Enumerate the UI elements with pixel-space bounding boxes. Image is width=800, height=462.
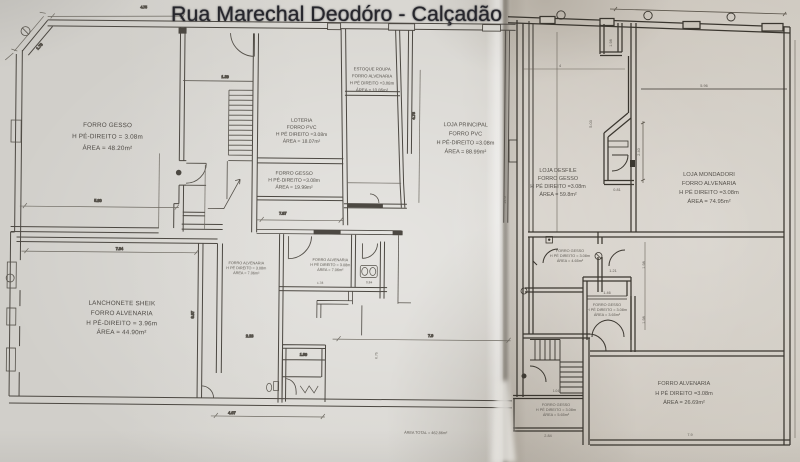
svg-text:ÁREA = 48.20m²: ÁREA = 48.20m² <box>82 143 132 152</box>
svg-text:FORRO GESSO: FORRO GESSO <box>556 249 584 253</box>
svg-text:FORRO GESSO: FORRO GESSO <box>542 403 570 407</box>
svg-text:FORRO GESSO: FORRO GESSO <box>83 122 132 129</box>
svg-text:1.98: 1.98 <box>609 39 613 46</box>
svg-text:ÁREA = 88.99m²: ÁREA = 88.99m² <box>444 148 486 155</box>
svg-text:FORRO PVC: FORRO PVC <box>287 125 317 131</box>
svg-text:1.04: 1.04 <box>553 389 559 393</box>
svg-text:H PÉ DIREITO = 3.08m: H PÉ DIREITO = 3.08m <box>550 253 590 258</box>
svg-text:H PÉ-DIREITO =3.08m: H PÉ-DIREITO =3.08m <box>268 176 320 183</box>
svg-text:ÁREA = 18.07m²: ÁREA = 18.07m² <box>283 138 321 145</box>
svg-text:ÁREA = 3.65m²: ÁREA = 3.65m² <box>594 313 621 317</box>
svg-text:1.46: 1.46 <box>603 291 610 295</box>
svg-text:7.9: 7.9 <box>428 334 433 338</box>
svg-text:6.97: 6.97 <box>191 311 195 318</box>
svg-text:1.78: 1.78 <box>36 43 44 51</box>
svg-text:FORRO ALVENARIA: FORRO ALVENARIA <box>313 258 349 262</box>
svg-text:2.40: 2.40 <box>637 148 641 155</box>
svg-text:LANCHONETE SHEIK: LANCHONETE SHEIK <box>88 300 156 308</box>
svg-text:FORRO PVC: FORRO PVC <box>449 131 482 137</box>
svg-text:H PÉ-DIREITO = 3.08m: H PÉ-DIREITO = 3.08m <box>72 131 143 141</box>
svg-text:ÁREA = 74.95m²: ÁREA = 74.95m² <box>687 198 730 205</box>
svg-text:4: 4 <box>559 64 561 68</box>
svg-text:ÁREA = 26.69m²: ÁREA = 26.69m² <box>663 399 705 406</box>
svg-text:LOTERIA: LOTERIA <box>291 118 313 124</box>
svg-text:H PÉ-DIREITO =3.08m: H PÉ-DIREITO =3.08m <box>437 139 495 147</box>
svg-text:FORRO ALVENARIA: FORRO ALVENARIA <box>352 73 392 78</box>
svg-text:ÁREA = 10.86m²: ÁREA = 10.86m² <box>356 87 389 92</box>
svg-text:1.21: 1.21 <box>609 269 616 273</box>
svg-text:5.96: 5.96 <box>700 84 707 88</box>
svg-text:2.23: 2.23 <box>246 334 253 338</box>
svg-text:7.94: 7.94 <box>116 247 123 251</box>
svg-text:FORRO GESSO: FORRO GESSO <box>593 303 621 307</box>
svg-text:H PÉ DIREITO = 3.08m: H PÉ DIREITO = 3.08m <box>536 407 576 412</box>
svg-text:7.9: 7.9 <box>687 433 692 437</box>
svg-text:FORRO GESSO: FORRO GESSO <box>538 176 578 182</box>
svg-text:LOJA DESFILE: LOJA DESFILE <box>539 168 577 174</box>
svg-text:0.84: 0.84 <box>366 280 372 284</box>
svg-text:FORRO ALVENARIA: FORRO ALVENARIA <box>229 261 265 265</box>
svg-text:ÁREA = 59.8m²: ÁREA = 59.8m² <box>539 191 577 198</box>
svg-text:14.0: 14.0 <box>503 196 507 203</box>
svg-text:1.39: 1.39 <box>221 75 228 79</box>
svg-text:H PÉ DIREITO = 3.08m: H PÉ DIREITO = 3.08m <box>587 307 627 312</box>
svg-text:FORRO ALVENARIA: FORRO ALVENARIA <box>682 181 736 187</box>
svg-text:1.99: 1.99 <box>300 353 307 357</box>
svg-text:ÁREA = 7.06m²: ÁREA = 7.06m² <box>233 271 260 275</box>
svg-text:ÁREA TOTAL = 462.86m²: ÁREA TOTAL = 462.86m² <box>404 431 448 435</box>
svg-text:ÁREA = 44.90m²: ÁREA = 44.90m² <box>97 327 147 336</box>
svg-text:4.75: 4.75 <box>140 5 147 9</box>
svg-text:2.84: 2.84 <box>544 434 551 438</box>
svg-text:FORRO ALVENARIA: FORRO ALVENARIA <box>91 310 154 318</box>
svg-text:0.81: 0.81 <box>613 188 620 192</box>
svg-text:H PÉ DIREITO =3.08m: H PÉ DIREITO =3.08m <box>276 131 328 138</box>
svg-text:H PÉ DIREITO = 3.08m: H PÉ DIREITO = 3.08m <box>226 265 266 270</box>
svg-text:6.75: 6.75 <box>374 352 378 359</box>
svg-text:4.73: 4.73 <box>412 112 416 119</box>
svg-text:5.80: 5.80 <box>94 199 101 203</box>
svg-text:H PÉ DIREITO = 3.08m: H PÉ DIREITO = 3.08m <box>310 262 350 267</box>
svg-text:ÁREA = 7.06m²: ÁREA = 7.06m² <box>317 268 344 272</box>
svg-text:5.03: 5.03 <box>589 120 593 127</box>
svg-text:H PÉ-DIREITO = 3.96m: H PÉ-DIREITO = 3.96m <box>86 318 157 328</box>
svg-text:LOJA MONDADORI: LOJA MONDADORI <box>683 172 735 178</box>
svg-text:ESTOQUE ROUPA: ESTOQUE ROUPA <box>354 66 391 71</box>
svg-text:LOJA PRINCIPAL: LOJA PRINCIPAL <box>443 122 487 128</box>
svg-text:1.78: 1.78 <box>317 281 323 285</box>
svg-text:ÁREA = 4.65m²: ÁREA = 4.65m² <box>557 259 584 263</box>
svg-text:7.87: 7.87 <box>279 212 286 216</box>
svg-text:H PÉ DIREITO =3.08m: H PÉ DIREITO =3.08m <box>350 80 395 85</box>
svg-text:1.98: 1.98 <box>642 316 646 323</box>
svg-text:H PÉ DIREITO =3.08m: H PÉ DIREITO =3.08m <box>655 390 713 397</box>
svg-text:1.98: 1.98 <box>642 261 646 268</box>
svg-text:4.07: 4.07 <box>228 411 235 415</box>
svg-text:ÁREA = 19.99m²: ÁREA = 19.99m² <box>275 184 313 191</box>
svg-text:FORRO ALVENARIA: FORRO ALVENARIA <box>658 381 711 387</box>
svg-text:H PÉ DIREITO =3.08m: H PÉ DIREITO =3.08m <box>530 183 586 190</box>
svg-text:FORRO GESSO: FORRO GESSO <box>276 171 313 177</box>
svg-text:H PÉ DIREITO =3.08m: H PÉ DIREITO =3.08m <box>679 189 739 196</box>
svg-text:ÁREA = 5.65m²: ÁREA = 5.65m² <box>543 413 570 417</box>
